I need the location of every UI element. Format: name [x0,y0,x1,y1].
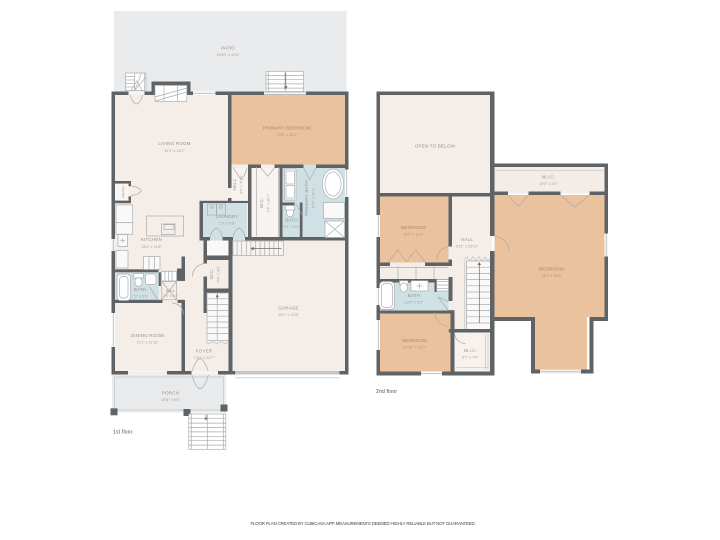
svg-text:HALL: HALL [232,178,237,190]
svg-text:19'3" x 18'2": 19'3" x 18'2" [164,149,186,153]
svg-text:BEDROOM: BEDROOM [402,338,427,343]
svg-text:FOYER: FOYER [196,349,213,354]
svg-text:LIVING ROOM: LIVING ROOM [158,141,190,146]
svg-text:39'10" x 13'6": 39'10" x 13'6" [217,53,241,57]
svg-text:KITCHEN: KITCHEN [141,237,162,242]
svg-text:PORCH: PORCH [162,391,179,396]
svg-text:18'8" x 6'9": 18'8" x 6'9" [161,398,180,402]
svg-text:OPEN TO BELOW: OPEN TO BELOW [415,144,456,149]
svg-text:BEDROOM: BEDROOM [539,267,564,272]
svg-text:W.C.: W.C. [259,198,264,209]
svg-text:LAUNDRY: LAUNDRY [216,214,239,219]
svg-text:2nd floor: 2nd floor [376,389,397,395]
svg-text:11'1" x 11'10": 11'1" x 11'10" [136,341,159,345]
svg-text:13'10" x 10'0": 13'10" x 10'0" [403,346,427,350]
svg-text:7'3" x 5'9": 7'3" x 5'9" [219,222,236,226]
svg-text:7'3" x 5'5": 7'3" x 5'5" [132,295,149,299]
svg-text:10'4" x 10'1": 10'4" x 10'1" [312,187,316,209]
svg-text:6'8" x 4'9": 6'8" x 4'9" [217,265,221,282]
svg-text:HALL: HALL [166,289,176,293]
svg-text:DINING ROOM: DINING ROOM [131,333,164,338]
svg-text:6'11" x 23'10": 6'11" x 23'10" [456,245,479,249]
svg-text:19'3" x 4'2": 19'3" x 4'2" [539,182,558,186]
svg-text:BEDROOM: BEDROOM [401,225,426,230]
svg-text:1st floor: 1st floor [113,430,133,436]
svg-text:7'6" x 2'4": 7'6" x 2'4" [163,294,179,298]
svg-text:PATIO: PATIO [221,46,235,51]
svg-text:19'5" x 15'1": 19'5" x 15'1" [277,133,299,137]
svg-text:19'1" x 22'8": 19'1" x 22'8" [278,313,300,317]
svg-text:13'0" x 11'3": 13'0" x 11'3" [403,233,424,237]
svg-text:W.C.: W.C. [209,269,214,280]
svg-text:BATH: BATH [408,293,421,298]
svg-text:W.I.C.: W.I.C. [542,175,555,180]
svg-text:BATH: BATH [134,287,147,292]
svg-text:PRIMARY BEDROOM: PRIMARY BEDROOM [263,126,311,131]
svg-text:HALL: HALL [461,237,473,242]
svg-text:13'0" x 11'8": 13'0" x 11'8" [141,245,162,249]
svg-text:PANTRY: PANTRY [122,184,126,198]
svg-text:5'0" x 5'10": 5'0" x 5'10" [240,174,244,193]
svg-text:13'0" x 5'5": 13'0" x 5'5" [405,301,424,305]
svg-text:6'7" x 4'9": 6'7" x 4'9" [462,356,479,360]
svg-text:BATH: BATH [285,218,298,223]
svg-text:GARAGE: GARAGE [278,306,299,311]
svg-text:7'0" x 5'9": 7'0" x 5'9" [283,225,300,229]
svg-text:PRIMARY BATH: PRIMARY BATH [304,180,309,216]
svg-text:14'3" x 30'5": 14'3" x 30'5" [541,274,563,278]
svg-text:FLOOR PLAN CREATED BY CUBICASA: FLOOR PLAN CREATED BY CUBICASA APP. MEAS… [251,521,476,526]
svg-text:7'10" x 14'7": 7'10" x 14'7" [194,356,216,360]
svg-text:5'2" x 10'7": 5'2" x 10'7" [267,193,271,212]
svg-text:W.I.C.: W.I.C. [464,348,477,353]
